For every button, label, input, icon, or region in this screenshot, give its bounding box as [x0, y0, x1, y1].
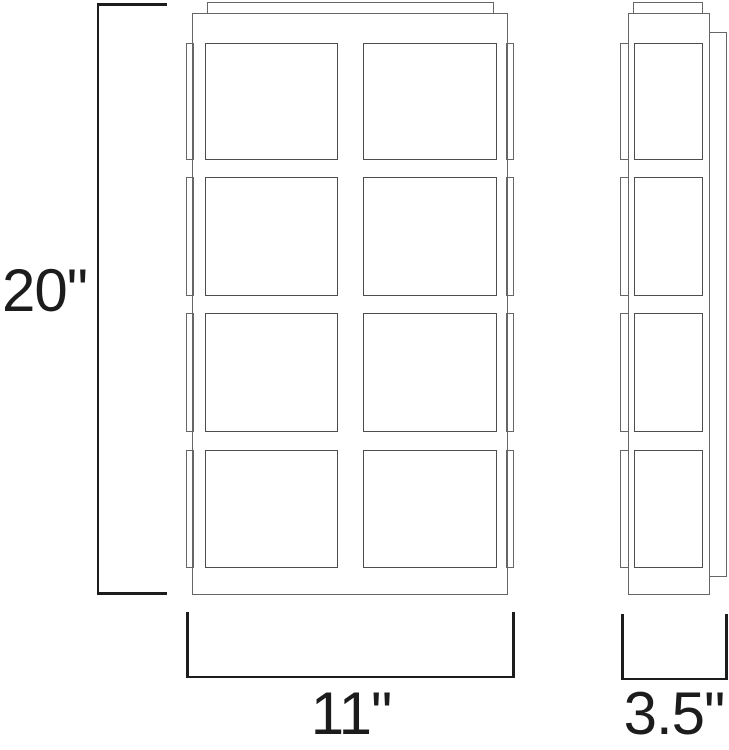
- front-right-tab: [506, 177, 514, 296]
- height-dimension-line: [97, 3, 167, 595]
- front-pane: [363, 450, 497, 568]
- depth-dimension-line: [621, 614, 728, 680]
- side-pane: [634, 43, 703, 160]
- side-view-back-plate: [709, 32, 727, 577]
- width-dimension-line: [186, 612, 515, 678]
- width-dimension-label: 11": [187, 684, 515, 744]
- front-pane: [205, 313, 338, 432]
- side-pane: [634, 313, 703, 432]
- front-pane: [363, 177, 497, 296]
- depth-dimension-label: 3.5": [618, 684, 729, 744]
- front-right-tab: [506, 313, 514, 432]
- side-tab: [620, 450, 629, 568]
- sconce-dimension-diagram: 20" 11" 3.5": [0, 0, 729, 750]
- front-pane: [205, 450, 338, 568]
- side-pane: [634, 177, 703, 296]
- front-pane: [205, 43, 338, 160]
- side-tab: [620, 313, 629, 432]
- front-pane: [205, 177, 338, 296]
- side-pane: [634, 450, 703, 568]
- front-left-tab: [186, 177, 194, 296]
- front-left-tab: [186, 313, 194, 432]
- front-right-tab: [506, 450, 514, 568]
- side-tab: [620, 177, 629, 296]
- front-pane: [363, 313, 497, 432]
- front-left-tab: [186, 450, 194, 568]
- side-tab: [620, 43, 629, 160]
- front-left-tab: [186, 43, 194, 160]
- front-pane: [363, 43, 497, 160]
- front-right-tab: [506, 43, 514, 160]
- height-dimension-label: 20": [0, 261, 87, 321]
